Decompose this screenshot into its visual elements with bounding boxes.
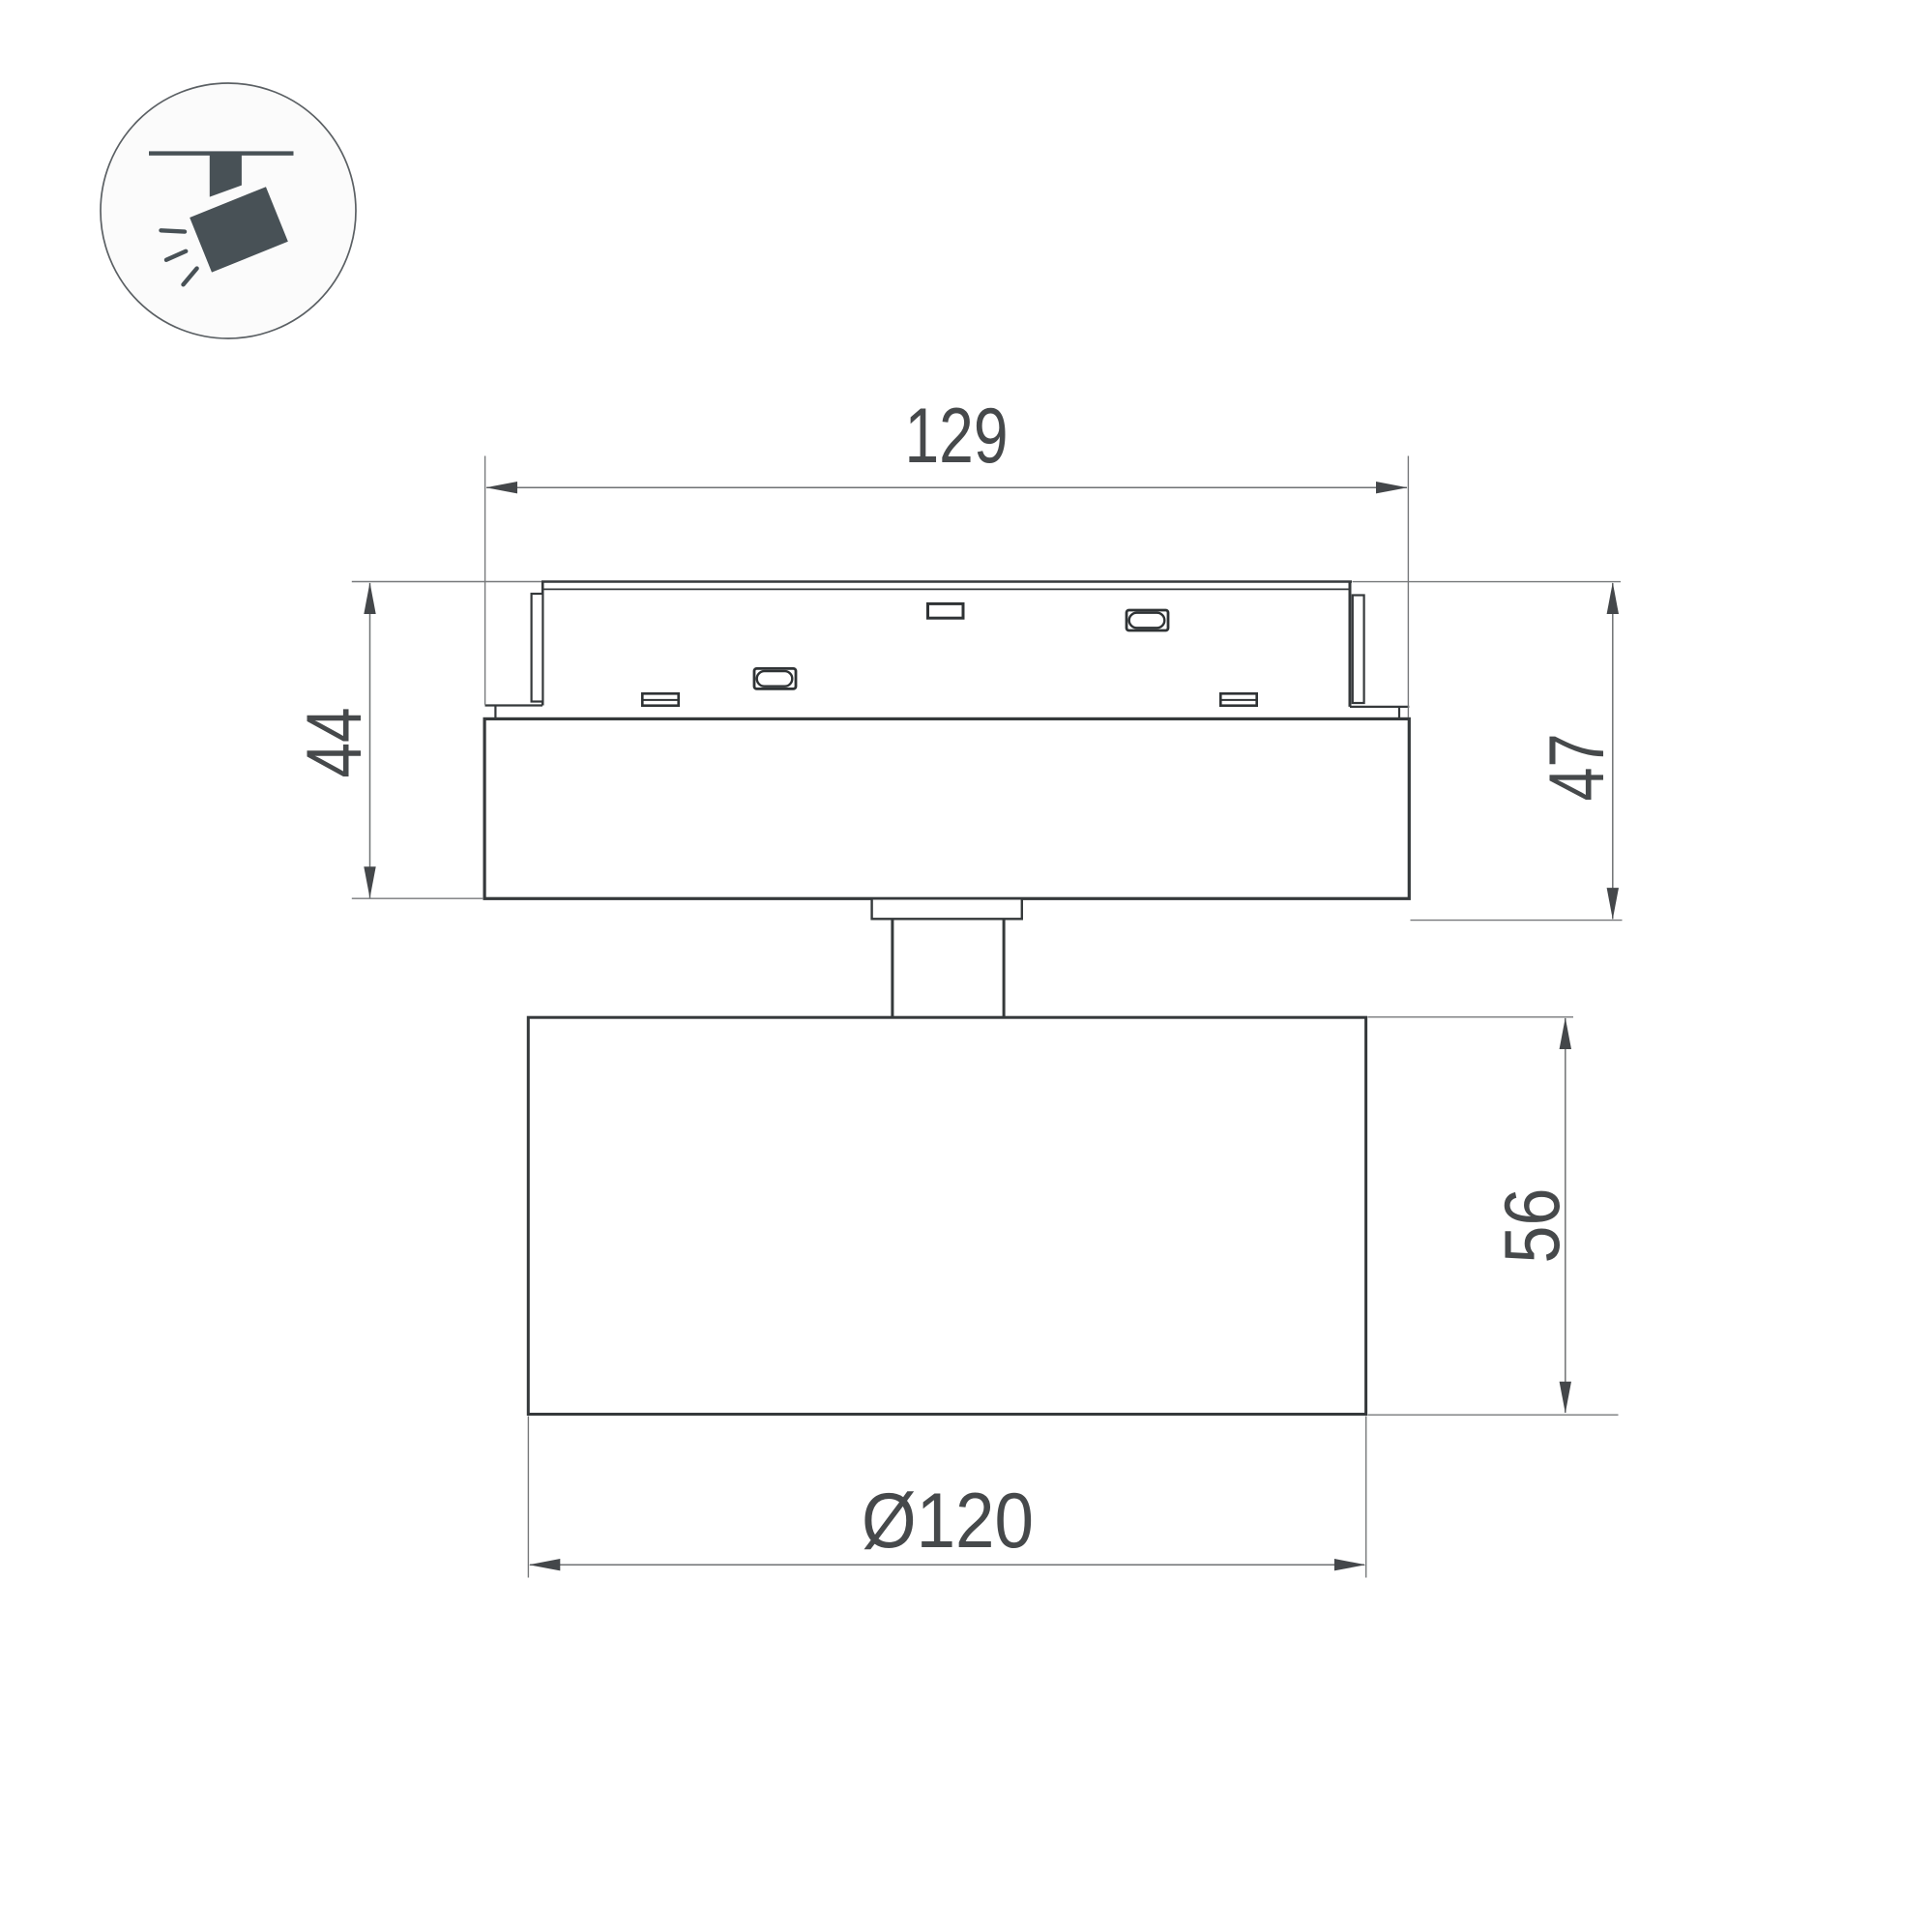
svg-text:47: 47 — [1534, 734, 1621, 802]
svg-text:129: 129 — [905, 393, 1009, 480]
svg-text:44: 44 — [291, 708, 378, 778]
svg-text:56: 56 — [1489, 1188, 1576, 1264]
svg-text:Ø120: Ø120 — [862, 1478, 1034, 1565]
